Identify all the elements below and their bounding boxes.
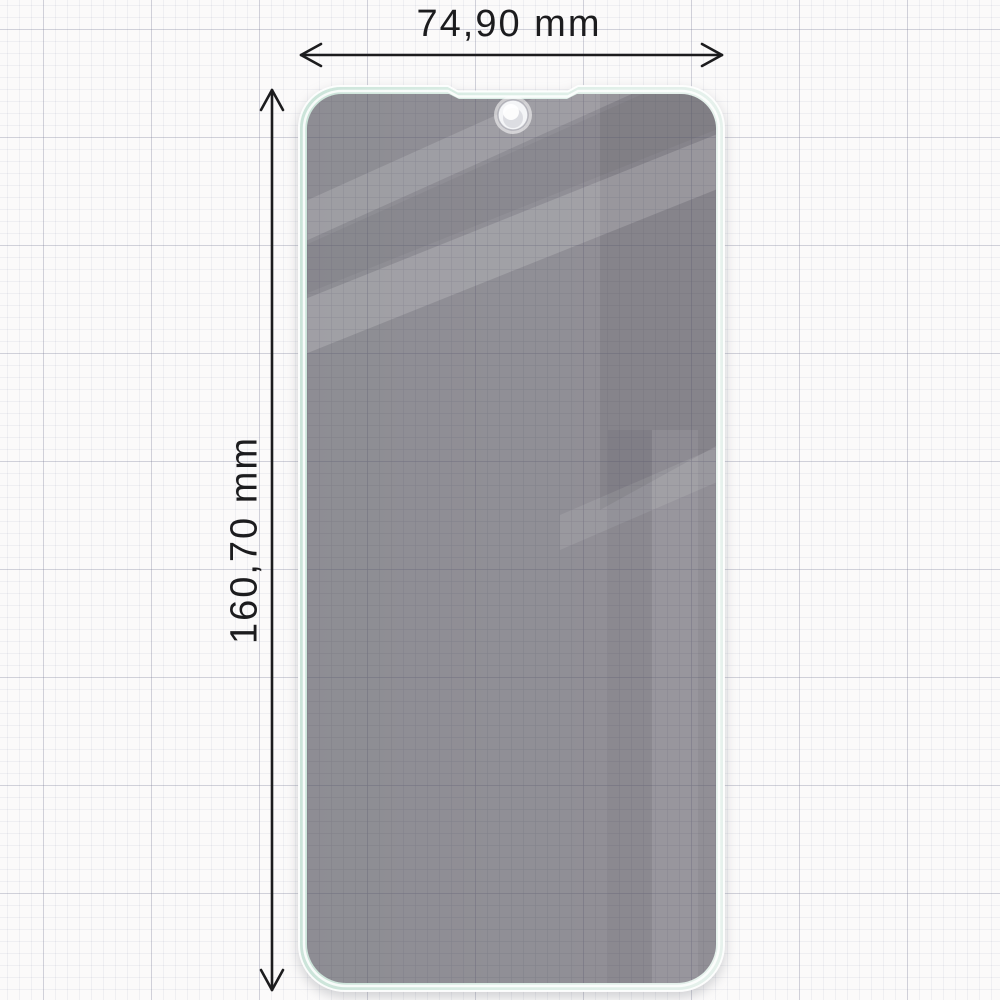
glass-reflections (290, 3, 745, 995)
glass-grid-overlay-major (290, 80, 730, 995)
screen-protector (290, 3, 745, 995)
width-dimension-label: 74,90 mm (417, 3, 602, 46)
camera-hole-cutout (494, 96, 532, 134)
dimension-diagram: 74,90 mm 160,70 mm (0, 0, 1000, 1000)
width-dimension-arrow (301, 44, 722, 66)
height-dimension-label: 160,70 mm (224, 436, 267, 644)
protector-and-arrows-graphic (0, 0, 1000, 1000)
